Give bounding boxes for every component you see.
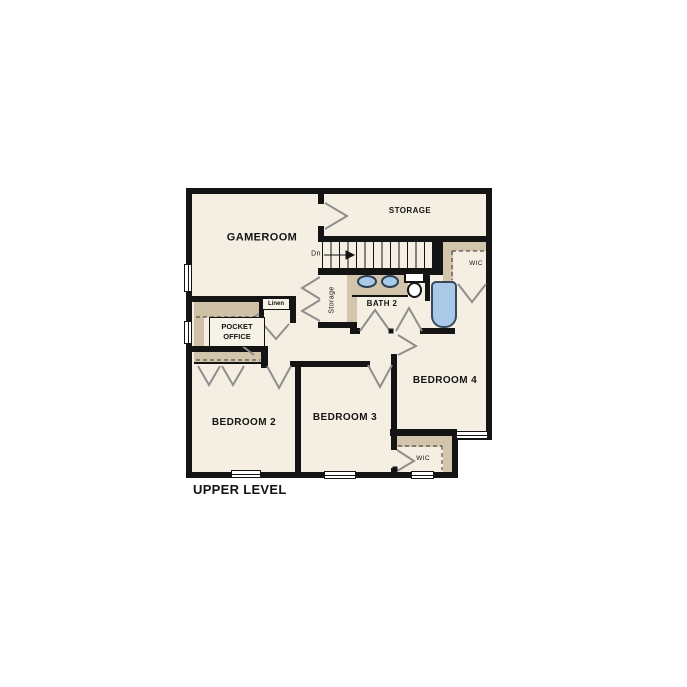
sink-right xyxy=(381,275,399,288)
pocket-office-desk-left xyxy=(194,302,204,346)
wall-bedroom2-door-jamb xyxy=(261,346,268,368)
wall-bedroom4-left-stub xyxy=(391,354,397,367)
sink-left xyxy=(357,275,377,288)
wall-linen-right xyxy=(290,302,296,323)
bedroom2-label: BEDROOM 2 xyxy=(212,418,276,428)
storage-room-label: STORAGE xyxy=(389,207,431,215)
wall-gameroom-storage-stub xyxy=(318,226,324,236)
plan-title: UPPER LEVEL xyxy=(193,482,287,497)
bathtub xyxy=(431,281,457,328)
wall-bedroom2-3-divider xyxy=(295,363,301,472)
wall-closet-shelf-edge xyxy=(194,362,264,364)
wall-bedroom3-right-upper xyxy=(391,367,397,450)
storage-closet-label: Storage xyxy=(329,286,336,313)
wall-outer-right xyxy=(486,188,492,440)
wall-tub-alcove-bottom xyxy=(420,328,455,334)
bedroom3-label: BEDROOM 3 xyxy=(313,413,377,423)
window-gameroom-left xyxy=(184,264,192,292)
gameroom-label: GAMEROOM xyxy=(227,233,297,244)
pocket-office-label-box: POCKET OFFICE xyxy=(209,317,265,347)
bath2-label: BATH 2 xyxy=(367,300,398,308)
floor-plan-canvas: Linen POCKET OFFICE GAMEROOM STORAGE BAT… xyxy=(0,0,687,687)
window-bedroom2 xyxy=(231,470,261,478)
wic-upper-shelf-left xyxy=(443,242,453,282)
wic-lower-shelf-right xyxy=(443,436,452,472)
wic-upper-label: WIC xyxy=(469,261,483,268)
window-bedroom4 xyxy=(456,431,488,439)
linen-label: Linen xyxy=(268,301,284,307)
wall-gameroom-storage-divider xyxy=(318,188,324,204)
window-wic-lower xyxy=(411,471,434,479)
wall-wic-lower-top xyxy=(390,429,457,436)
window-office-left xyxy=(184,321,192,344)
stair-dn-label: Dn xyxy=(311,251,321,258)
staircase-treads xyxy=(322,242,432,268)
wall-bath-bottom-stub xyxy=(350,328,360,334)
wall-chase-void xyxy=(432,242,443,275)
wall-bedroom3-right-lower xyxy=(391,468,397,478)
window-bedroom3 xyxy=(324,471,356,479)
wic-lower-label: WIC xyxy=(416,456,430,463)
bedroom4-label: BEDROOM 4 xyxy=(413,376,477,386)
pocket-office-label: POCKET OFFICE xyxy=(217,322,257,342)
wall-bedroom3-top xyxy=(290,361,370,367)
toilet-bowl xyxy=(407,282,422,298)
linen-label-box: Linen xyxy=(262,298,290,310)
wall-stair-top xyxy=(318,236,492,242)
wall-outer-top xyxy=(186,188,492,194)
wall-bath-tub-divider xyxy=(425,275,430,301)
